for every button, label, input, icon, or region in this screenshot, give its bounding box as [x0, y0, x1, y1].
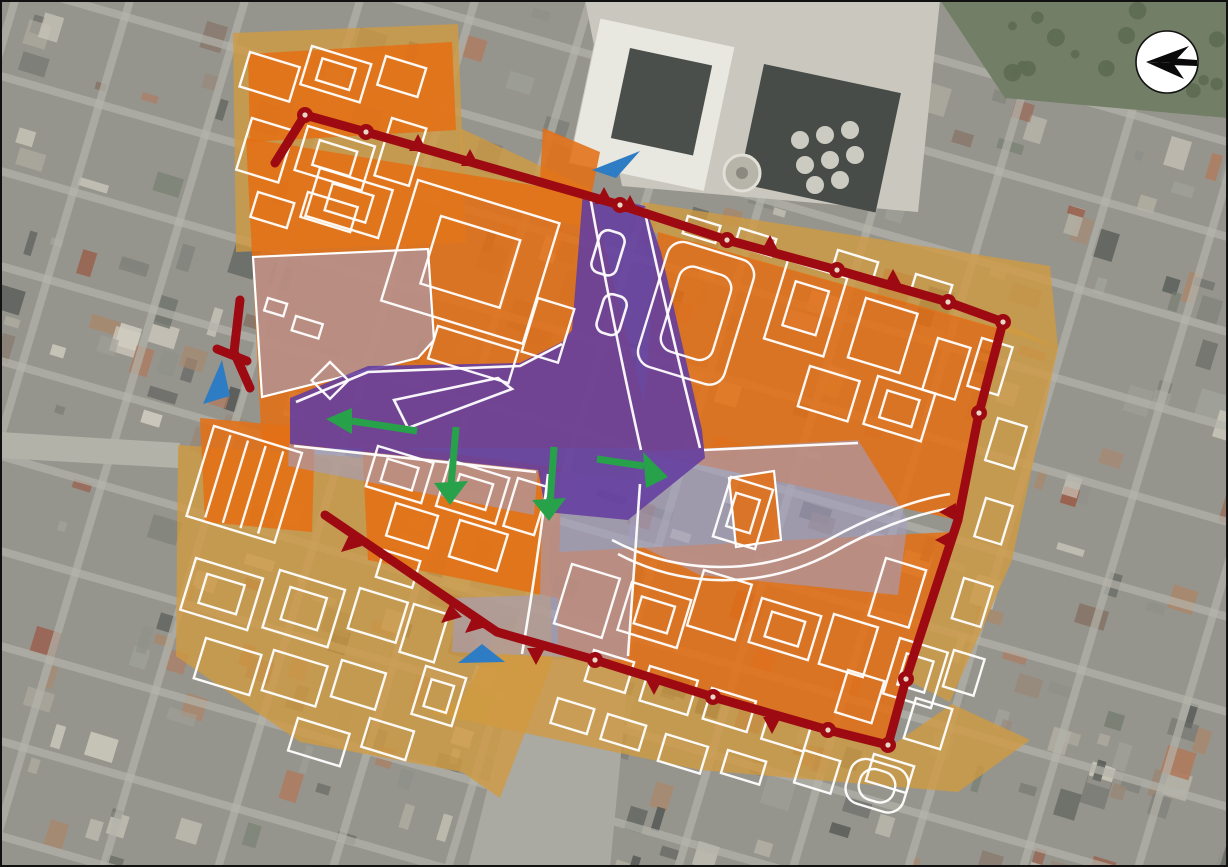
arrow-south-1-shaft	[451, 427, 456, 486]
aerial-map-canvas	[0, 0, 1228, 867]
park-tree	[1012, 68, 1020, 76]
boundary-vertex-center	[903, 676, 908, 681]
park-tree	[1198, 75, 1209, 86]
boundary-vertex-center	[945, 299, 950, 304]
city-map	[0, 0, 1228, 867]
dome-roof	[831, 171, 849, 189]
boundary-vertex-center	[724, 237, 729, 242]
park-tree	[1118, 27, 1135, 44]
park-tree	[1209, 31, 1225, 47]
fountain-center	[736, 167, 748, 179]
boundary-vertex-center	[834, 267, 839, 272]
park-tree	[1098, 60, 1115, 77]
boundary-vertex-center	[976, 410, 981, 415]
dome-roof	[846, 146, 864, 164]
boundary-vertex-center	[710, 694, 715, 699]
park-tree	[1129, 2, 1147, 20]
boundary-vertex-center	[885, 742, 890, 747]
boundary-vertex-center	[592, 657, 597, 662]
park-tree	[1071, 50, 1080, 59]
dome-roof	[841, 121, 859, 139]
dome-roof	[816, 126, 834, 144]
dome-roof	[791, 131, 809, 149]
boundary-vertex-center	[302, 112, 307, 117]
park-tree	[1047, 29, 1065, 47]
dome-roof	[806, 176, 824, 194]
zone-orange-church-parcel	[729, 471, 781, 547]
boundary-vertex-center	[825, 727, 830, 732]
boundary-vertex-center	[617, 202, 622, 207]
dome-roof	[821, 151, 839, 169]
park-tree	[1031, 11, 1043, 23]
boundary-vertex-center	[363, 129, 368, 134]
park-tree	[1210, 78, 1223, 91]
park-tree	[1008, 22, 1017, 31]
arrow-south-2-shaft	[550, 447, 554, 504]
boundary-vertex-center	[1000, 319, 1005, 324]
dome-roof	[796, 156, 814, 174]
north-arrow-icon	[1136, 31, 1198, 93]
